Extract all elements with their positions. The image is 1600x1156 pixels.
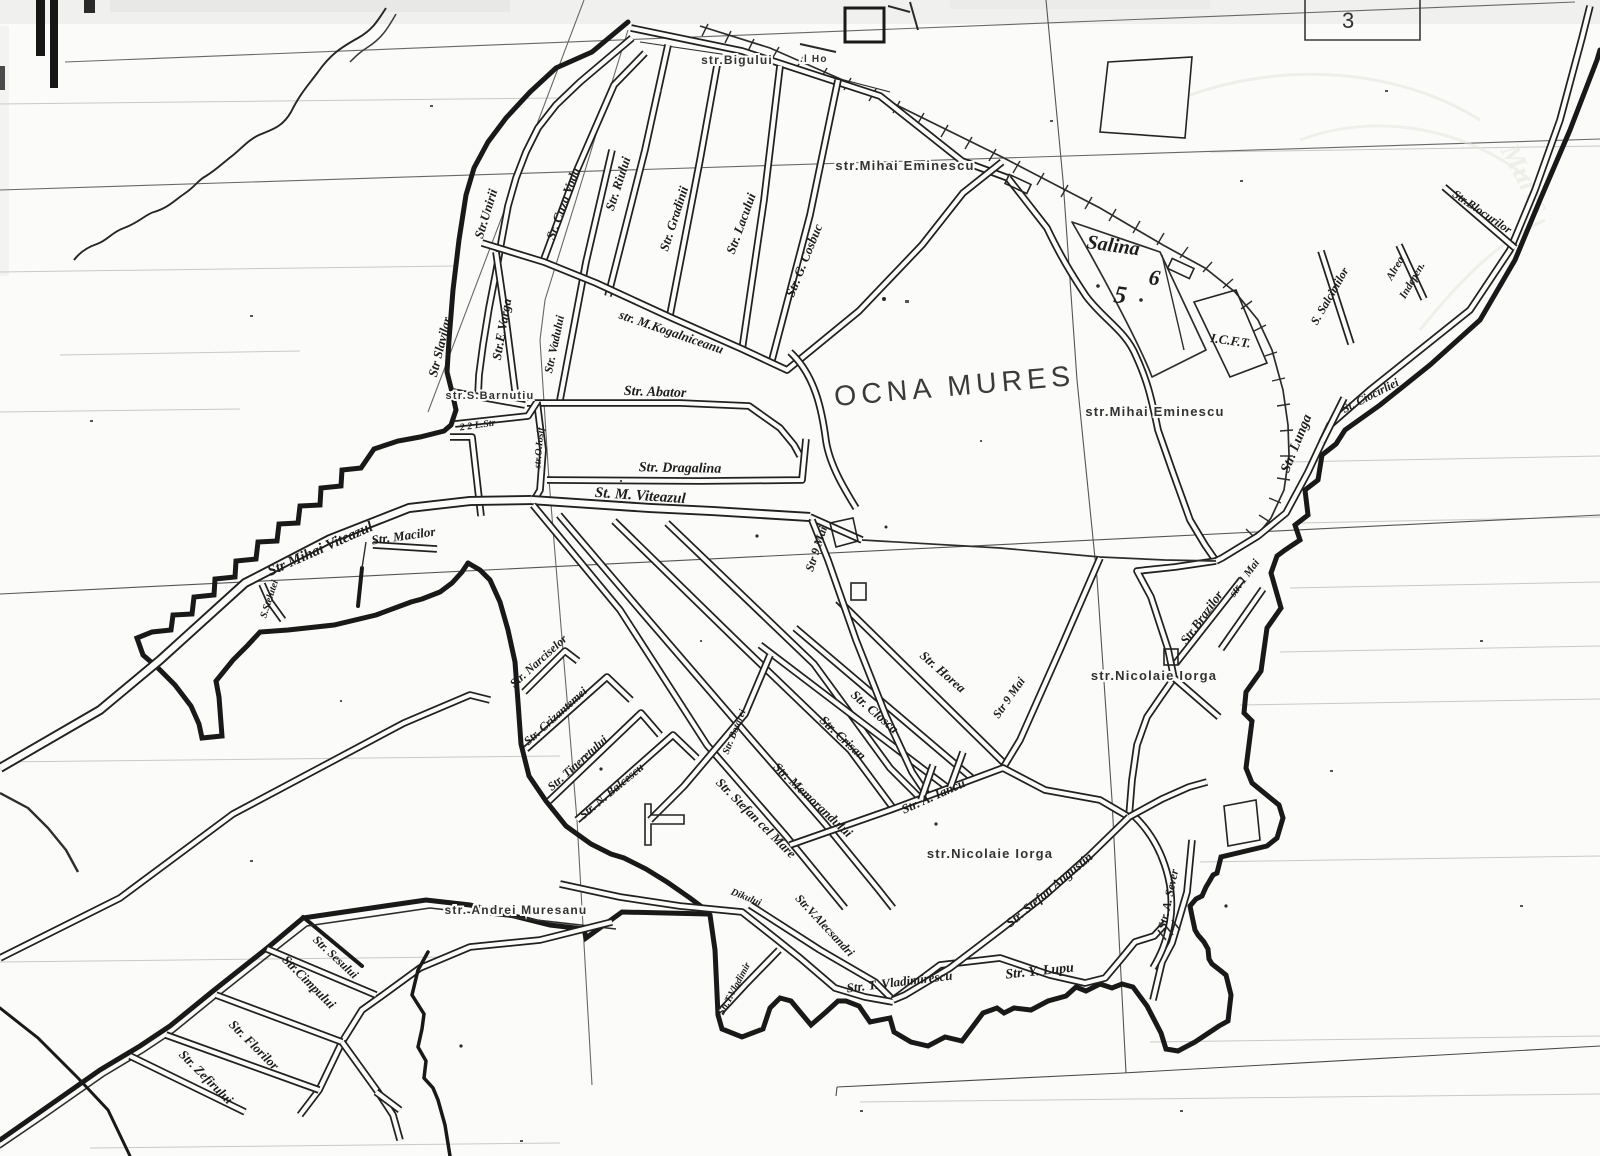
svg-text:str.Mihai Eminescu: str.Mihai Eminescu [835, 158, 974, 173]
svg-text:str.Bigului: str.Bigului [701, 53, 773, 67]
svg-text:Str. Abator: Str. Abator [624, 384, 688, 401]
svg-text:3: 3 [1342, 8, 1354, 33]
svg-text:Str. Dragalina: Str. Dragalina [639, 460, 722, 476]
svg-text:str.S.Barnutiu: str.S.Barnutiu [446, 390, 535, 402]
svg-text:str.Mihai Eminescu: str.Mihai Eminescu [1085, 404, 1224, 419]
svg-text:str.Nicolaie Iorga: str.Nicolaie Iorga [1091, 668, 1217, 683]
svg-text:str.Nicolaie Iorga: str.Nicolaie Iorga [927, 846, 1053, 861]
svg-text:str. Andrei Muresanu: str. Andrei Muresanu [445, 903, 588, 917]
svg-text:.l Ho: .l Ho [800, 54, 828, 65]
